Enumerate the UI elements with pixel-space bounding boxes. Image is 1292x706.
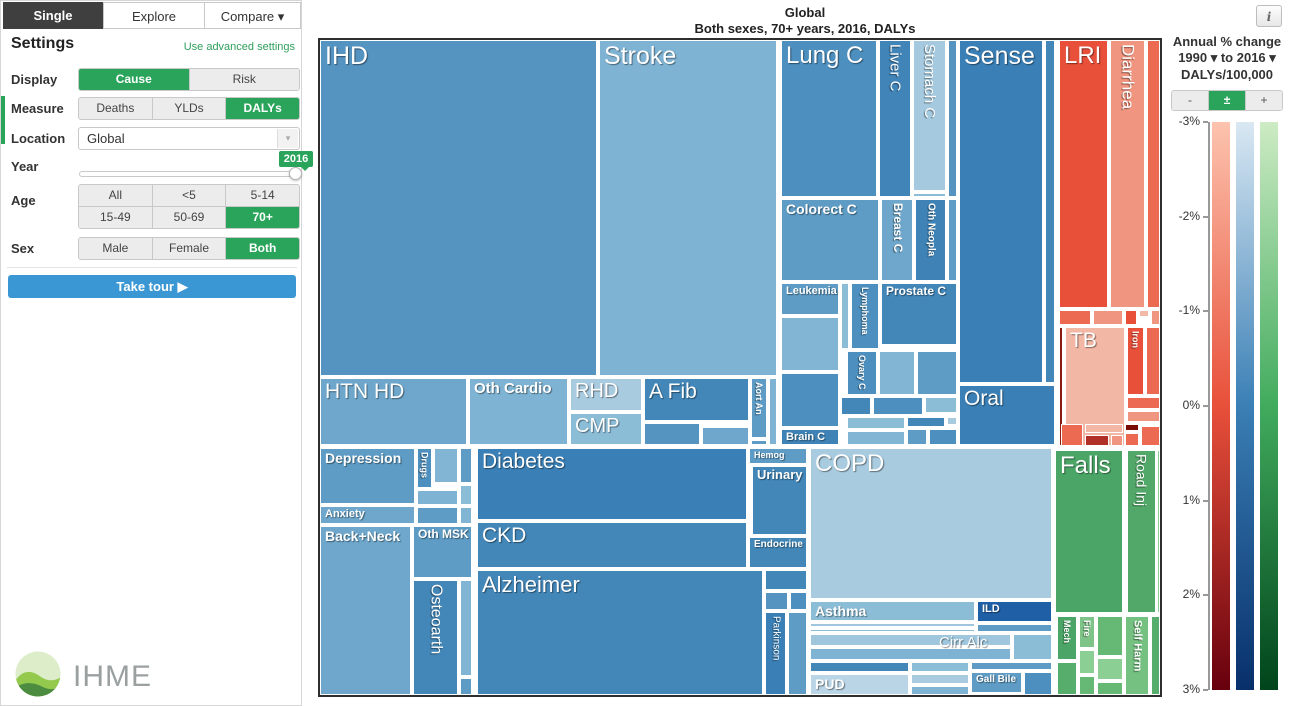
treemap-cell-ckd[interactable]: CKD [477,522,747,568]
treemap-cell-label: Alzheimer [478,571,762,598]
treemap-cell-htn-hd[interactable]: HTN HD [320,378,467,445]
treemap-cell-unlabeled[interactable] [434,448,458,483]
treemap-cell-label: Diabetes [478,449,746,475]
age-option-under5[interactable]: <5 [152,185,226,206]
treemap-cell-back-neck[interactable]: Back+Neck [320,526,411,695]
treemap-cell-label: Lymphoma [860,284,870,348]
treemap-cell-label: Fire [1082,617,1092,647]
treemap-cell-label: Ovary C [857,352,867,394]
legend-gradient-bar-noncommunicable-blue [1236,122,1254,690]
legend-title: Annual % change [1162,34,1292,49]
age-option-all[interactable]: All [79,185,152,206]
treemap-cell-copd[interactable]: COPD [810,448,1052,599]
age-option-70plus[interactable]: 70+ [225,207,299,228]
year-label: Year [11,159,38,174]
age-toggle-row-2: 15-49 50-69 70+ [78,206,300,229]
treemap-cell-oth-cardio[interactable]: Oth Cardio [469,378,568,445]
treemap-cell-unlabeled[interactable] [977,624,1052,632]
location-value: Global [87,131,125,146]
age-option-5-14[interactable]: 5-14 [225,185,299,206]
treemap-cell-label: Parkinson [770,613,782,694]
sex-option-both[interactable]: Both [225,238,299,259]
legend-tick-mark [1203,121,1208,123]
display-option-risk[interactable]: Risk [189,69,300,90]
legend-tick-mark [1203,689,1208,691]
treemap-cell-unlabeled[interactable] [1061,424,1083,446]
treemap-cell-unlabeled[interactable] [873,397,923,415]
treemap-cell-label: COPD [811,449,1051,479]
treemap-cell-label: Urinary [753,467,806,484]
year-slider-track[interactable] [79,171,299,177]
treemap-cell-ild[interactable]: ILD [977,601,1052,622]
treemap-cell-label: HTN HD [321,379,466,405]
treemap-cell-unlabeled[interactable] [1146,327,1160,395]
treemap-cell-label: Stroke [600,41,776,72]
treemap-cell-oth-neopla[interactable]: Oth Neopla [915,199,946,281]
treemap-cell-label: CMP [571,414,641,439]
treemap-cell-unlabeled[interactable] [929,429,957,445]
treemap-cell-ihd[interactable]: IHD [320,40,597,376]
treemap-cell-endocrine[interactable]: Endocrine [749,537,807,568]
treemap-cell-label: Back+Neck [321,527,410,545]
treemap-cell-unlabeled[interactable] [417,490,458,505]
treemap-cell-unlabeled[interactable] [769,378,777,445]
measure-toggle-group: Deaths YLDs DALYs [78,97,300,120]
treemap-cell-unlabeled[interactable] [460,507,472,524]
treemap-cell-falls[interactable]: Falls [1055,450,1123,613]
treemap-cell-unlabeled[interactable] [911,686,969,695]
legend-tick-mark [1203,405,1208,407]
treemap-cell-label: IHD [321,41,596,72]
treemap-cell-unlabeled[interactable] [1147,40,1160,308]
treemap-cell-unlabeled[interactable] [810,629,975,632]
treemap-cell-breast-c[interactable]: Breast C [881,199,913,281]
treemap-cell-label: Falls [1056,451,1122,481]
treemap-cell-unlabeled[interactable] [1057,662,1077,695]
treemap-cell-label: Aort An [754,379,764,437]
treemap-cell-unlabeled[interactable] [847,431,905,445]
treemap-cell-unlabeled[interactable] [1045,40,1055,383]
treemap-cell-parkinson[interactable]: Parkinson [765,612,786,695]
chart-subtitle: Both sexes, 70+ years, 2016, DALYs [318,21,1292,36]
treemap-cell-label: PUD [811,675,908,693]
treemap-cell-unlabeled[interactable] [907,429,927,445]
age-option-15-49[interactable]: 15-49 [79,207,152,228]
treemap-cell-stomach-c[interactable]: Stomach C [913,40,946,191]
legend-gradient-bar-communicable-red [1212,122,1230,690]
treemap-cell-label: Colorect C [782,200,878,218]
treemap-cell-hemog[interactable]: Hemog [749,448,807,464]
treemap-cell-drugs[interactable]: Drugs [417,448,432,488]
treemap-cell-rhd[interactable]: RHD [570,378,642,411]
legend-axis [1208,122,1210,690]
treemap-cell-unlabeled[interactable] [1079,650,1095,674]
treemap-cell-unlabeled[interactable] [911,662,969,672]
treemap-cell-unlabeled[interactable] [1085,424,1123,433]
tab-explore[interactable]: Explore [103,2,205,29]
take-tour-button[interactable]: Take tour ▶ [8,275,296,298]
treemap-cell-label: Oth MSK [414,527,471,543]
measure-option-ylds[interactable]: YLDs [152,98,226,119]
treemap-cell-label: Road Inj [1133,451,1149,612]
use-advanced-settings-link[interactable]: Use advanced settings [184,41,295,53]
display-option-cause[interactable]: Cause [79,69,189,90]
treemap-cell-lymphoma[interactable]: Lymphoma [851,283,879,349]
sex-toggle-group: Male Female Both [78,237,300,260]
treemap-cell-label: Liver C [886,41,903,196]
display-toggle-group: Cause Risk [78,68,300,91]
ihme-logo: IHME [15,651,152,702]
treemap-cell-label: Stomach C [921,41,938,190]
legend-tick-mark [1203,216,1208,218]
tab-compare[interactable]: Compare ▾ [205,2,301,29]
treemap-cell-unlabeled[interactable] [971,662,1052,670]
treemap-cell-unlabeled[interactable] [1111,435,1123,446]
chart-title: Global [318,5,1292,20]
legend-tick-label: -2% [1162,209,1200,223]
treemap-cell-label: Anxiety [321,507,414,522]
treemap-cell-label: Lung C [782,41,876,71]
treemap-cell-label: Hemog [750,449,806,461]
treemap-cell-label: Osteoarth [426,581,444,694]
age-label: Age [11,193,36,208]
treemap-cell-label: Gall Bile [972,673,1021,687]
gbd-compare-app: Single Explore Compare ▾ Settings Use ad… [0,0,1292,706]
treemap-cell-unlabeled[interactable] [948,199,957,281]
treemap-cell-label: Leukemia [782,284,838,299]
treemap-cell-unlabeled[interactable] [790,592,807,610]
treemap-cell-oral[interactable]: Oral [959,385,1055,445]
treemap-cell-road-inj[interactable]: Road Inj [1127,450,1156,613]
treemap-cell-unlabeled[interactable] [917,351,957,395]
treemap-cell-unlabeled[interactable] [947,417,957,425]
treemap-cell-unlabeled[interactable] [1157,450,1160,613]
treemap-cell-colorect-c[interactable]: Colorect C [781,199,879,281]
panel-scroll-indicator [1,96,5,144]
treemap-cell-label: Drugs [419,449,429,487]
treemap-cell-unlabeled[interactable] [460,678,472,695]
treemap-cell-unlabeled[interactable] [417,507,458,524]
treemap-cell-unlabeled[interactable] [460,580,472,676]
sex-label: Sex [11,241,34,256]
treemap-cell-gall-bile[interactable]: Gall Bile [971,672,1022,693]
treemap-cell-unlabeled[interactable] [1059,310,1091,325]
display-label: Display [11,72,57,87]
treemap-cell-diarrhea[interactable]: Diarrhea [1110,40,1145,308]
treemap-cell-label: ILD [978,602,1051,617]
treemap-cell-label: Depression [321,449,414,467]
legend-plus-button[interactable]: + [1245,91,1282,110]
legend-tick-mark [1203,310,1208,312]
treemap-cell-a-fib[interactable]: A Fib [644,378,749,421]
treemap-cell-unlabeled[interactable] [1125,433,1139,446]
treemap-cell-unlabeled[interactable] [781,317,839,371]
settings-title: Settings [11,35,74,53]
treemap-cell-liver-c[interactable]: Liver C [879,40,911,197]
sex-option-female[interactable]: Female [152,238,226,259]
treemap-cell-unlabeled[interactable] [644,423,700,445]
tab-single[interactable]: Single [3,2,103,29]
treemap-cell-stroke[interactable]: Stroke [599,40,777,376]
legend-tick-mark [1203,594,1208,596]
treemap-cell-unlabeled[interactable] [1093,310,1123,325]
treemap-cell-unlabeled[interactable] [911,674,969,684]
treemap-cell-unlabeled[interactable] [841,283,849,349]
treemap-cell-ovary-c[interactable]: Ovary C [847,351,877,395]
legend-plusminus-button[interactable]: ± [1208,91,1245,110]
treemap-cell-label: Prostate C [882,284,956,300]
location-label: Location [11,131,65,146]
treemap-cell-unlabeled[interactable] [810,623,975,627]
treemap-cell-label: Sense [960,41,1042,72]
measure-option-deaths[interactable]: Deaths [79,98,152,119]
treemap-cell-unlabeled[interactable] [810,634,1011,646]
treemap-cell-label: Oral [960,386,1054,412]
treemap-cell-unlabeled[interactable] [765,570,807,590]
treemap-cell-unlabeled[interactable] [1097,658,1123,680]
treemap-cell-label: Brain C [782,430,838,445]
treemap-cell-unlabeled[interactable] [1127,411,1160,422]
sex-option-male[interactable]: Male [79,238,152,259]
treemap-cell-label: TB [1066,328,1124,354]
treemap-cell-depression[interactable]: Depression [320,448,415,504]
treemap-cell-lri[interactable]: LRI [1059,40,1108,308]
legend-tick-mark [1203,500,1208,502]
treemap-cell-label: RHD [571,379,641,404]
treemap-cell-unlabeled[interactable] [841,397,871,415]
treemap-cell-unlabeled[interactable] [810,648,1011,660]
treemap-cell-iron[interactable]: Iron [1127,327,1144,395]
treemap-cell-brain-c[interactable]: Brain C [781,429,839,445]
treemap-cell-unlabeled[interactable] [1097,616,1123,656]
treemap-cell-leukemia[interactable]: Leukemia [781,283,839,315]
legend-tick-label: -1% [1162,303,1200,317]
legend-tick-label: -3% [1162,114,1200,128]
legend-gradient-bar-injuries-green [1260,122,1278,690]
legend-tick-label: 2% [1162,587,1200,601]
legend-units: DALYs/100,000 [1162,67,1292,82]
treemap-cell-unlabeled[interactable] [1085,435,1109,446]
treemap-cell-unlabeled[interactable] [913,193,946,197]
treemap-cell-label: LRI [1060,41,1107,71]
treemap-cell-label: Asthma [811,602,974,620]
panel-divider [7,267,297,268]
treemap-cell-osteoarth[interactable]: Osteoarth [413,580,458,695]
age-toggle-row-1: All <5 5-14 [78,184,300,206]
treemap-cell-unlabeled[interactable] [1151,310,1160,325]
treemap-cell-mech[interactable]: Mech [1057,616,1077,660]
treemap: IHDStrokeHTN HDOth CardioRHDCMPA FibAort… [318,38,1162,697]
treemap-cell-unlabeled[interactable] [1125,310,1137,325]
measure-label: Measure [11,101,64,116]
treemap-cell-unlabeled[interactable] [460,485,472,505]
settings-panel: Single Explore Compare ▾ Settings Use ad… [0,0,302,706]
treemap-cell-unlabeled[interactable] [1125,424,1139,431]
treemap-cell-unlabeled[interactable] [788,612,807,695]
legend-tick-label: 1% [1162,493,1200,507]
location-select[interactable]: Global ▾ [78,127,300,150]
legend-tick-label: 0% [1162,398,1200,412]
treemap-cell-unlabeled[interactable] [925,397,957,413]
treemap-cell-unlabeled[interactable] [702,427,749,445]
treemap-cell-unlabeled[interactable] [1151,616,1160,695]
treemap-cell-asthma[interactable]: Asthma [810,601,975,621]
treemap-cell-label: Oth Cardio [470,379,567,398]
treemap-cell-fire[interactable]: Fire [1079,616,1095,648]
treemap-cell-urinary[interactable]: Urinary [752,466,807,535]
age-option-50-69[interactable]: 50-69 [152,207,226,228]
treemap-cell-aort-an[interactable]: Aort An [751,378,767,438]
treemap-cell-label: Self Harm [1131,617,1144,694]
treemap-cell-label: CKD [478,523,746,549]
treemap-cell-sense[interactable]: Sense [959,40,1043,383]
treemap-cell-prostate-c[interactable]: Prostate C [881,283,957,345]
ihme-logo-text: IHME [73,660,152,694]
treemap-cell-unlabeled[interactable] [1127,397,1160,409]
treemap-cell-unlabeled[interactable] [460,448,472,483]
treemap-cell-unlabeled[interactable] [1024,672,1052,695]
treemap-cell-unlabeled[interactable] [781,373,839,427]
legend-tick-label: 3% [1162,682,1200,696]
treemap-cell-label: Iron [1130,328,1140,394]
treemap-cell-unlabeled[interactable] [1097,682,1123,695]
treemap-cell-oth-msk[interactable]: Oth MSK [413,526,472,578]
chevron-down-icon: ▾ [277,129,298,148]
treemap-cell-label: Mech [1062,617,1072,659]
treemap-cell-label: Diarrhea [1118,41,1138,307]
treemap-cell-label: Endocrine [750,538,806,552]
treemap-cell-lung-c[interactable]: Lung C [781,40,877,197]
treemap-cell-diabetes[interactable]: Diabetes [477,448,747,520]
treemap-cell-alzheimer[interactable]: Alzheimer [477,570,763,695]
treemap-cell-unlabeled[interactable] [765,592,788,610]
treemap-cell-cmp[interactable]: CMP [570,413,642,445]
treemap-cell-anxiety[interactable]: Anxiety [320,506,415,524]
treemap-cell-unlabeled[interactable] [1141,426,1160,446]
treemap-cell-label: A Fib [645,379,748,405]
legend-sign-toggle-group: - ± + [1171,90,1283,111]
treemap-cell-self-harm[interactable]: Self Harm [1125,616,1149,695]
treemap-cell-pud[interactable]: PUD [810,674,909,695]
treemap-cell-unlabeled[interactable] [1139,310,1149,317]
year-badge: 2016 [279,151,313,167]
treemap-cell-unlabeled[interactable] [1079,676,1095,695]
treemap-cell-unlabeled[interactable] [810,662,909,672]
treemap-cell-unlabeled[interactable] [847,417,905,429]
treemap-cell-label: Breast C [890,200,904,280]
legend-year-range-dropdowns[interactable]: 1990 ▾ to 2016 ▾ [1162,50,1292,66]
treemap-cell-unlabeled[interactable] [751,440,767,445]
legend-minus-button[interactable]: - [1172,91,1208,110]
treemap-cell-unlabeled[interactable] [1013,634,1052,660]
measure-option-dalys[interactable]: DALYs [225,98,299,119]
ihme-logo-icon [15,651,61,702]
treemap-cell-unlabeled[interactable] [879,351,915,395]
color-legend: Annual % change 1990 ▾ to 2016 ▾ DALYs/1… [1162,0,1292,706]
treemap-cell-unlabeled[interactable] [948,40,957,197]
treemap-cell-label: Oth Neopla [925,200,937,280]
treemap-cell-unlabeled[interactable] [907,417,945,427]
